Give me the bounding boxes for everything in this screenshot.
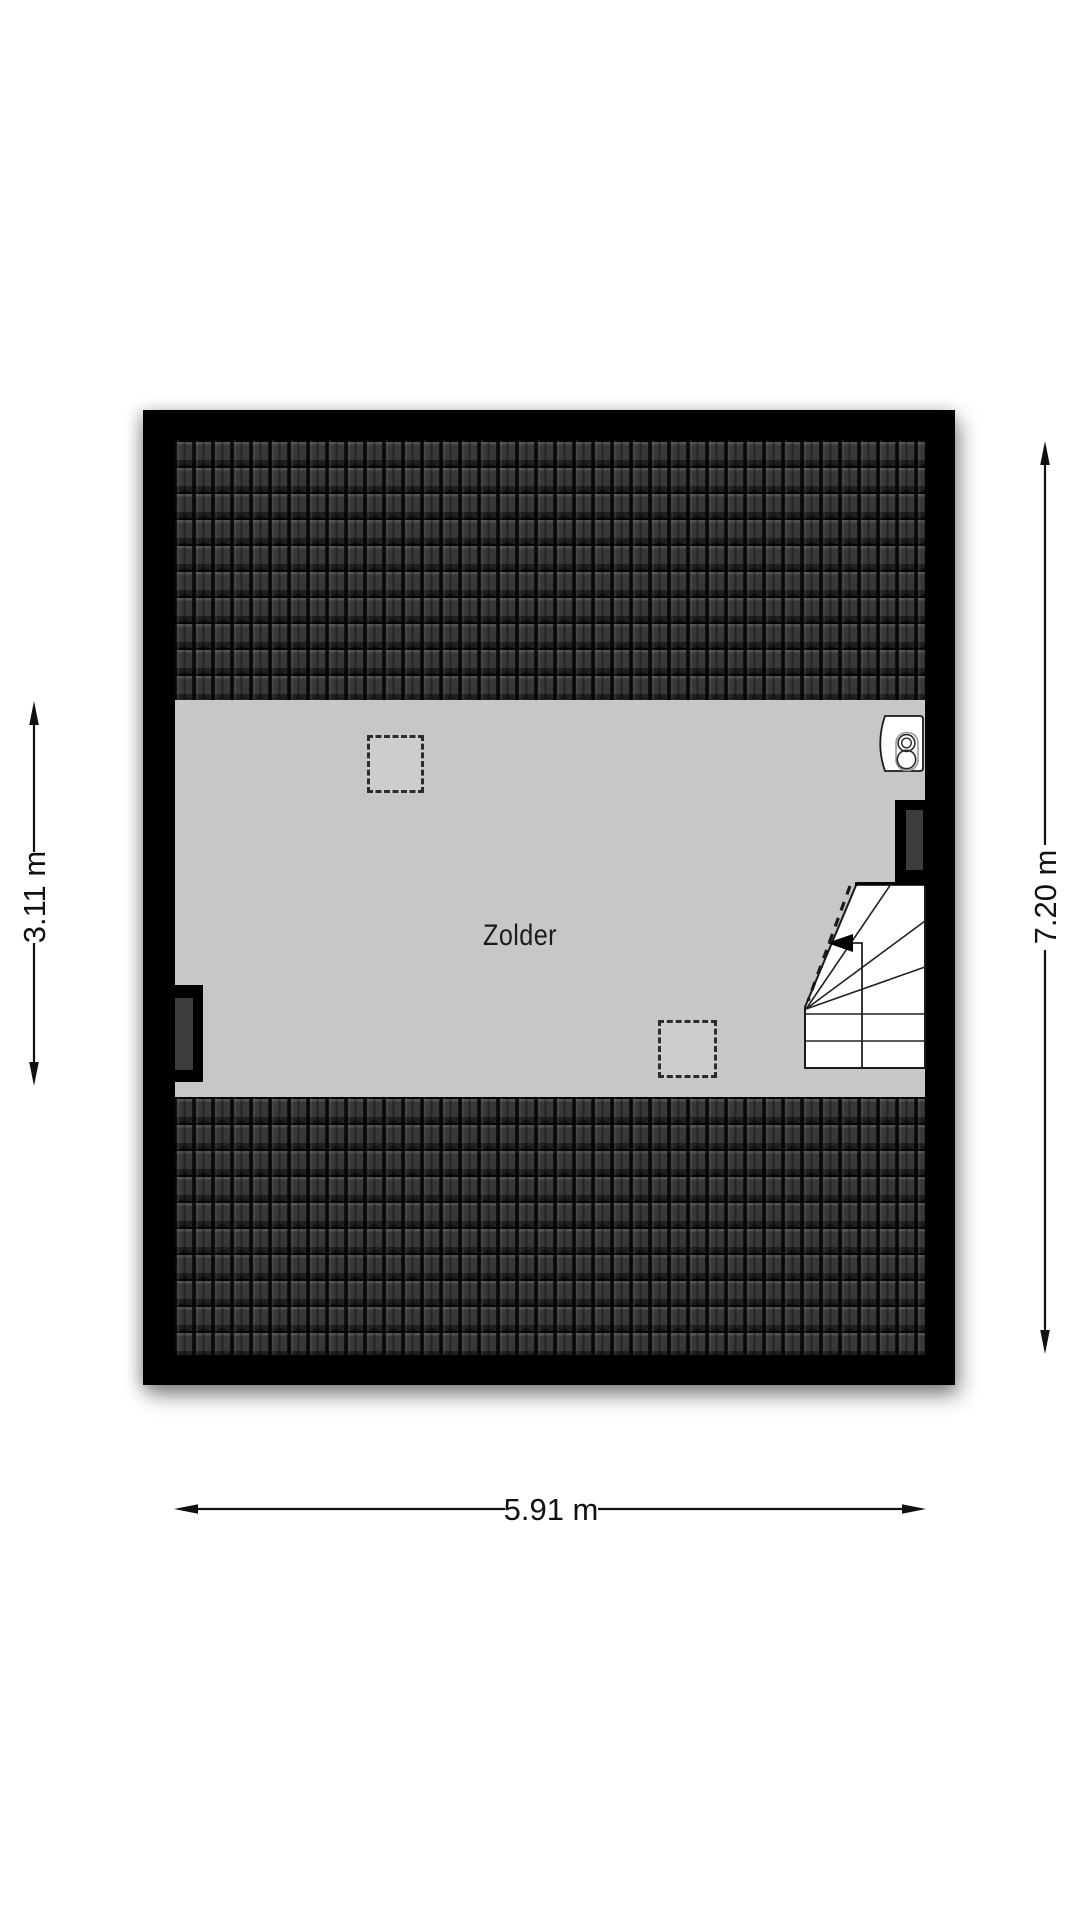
- floorplan-page: { "plan": { "type": "floorplan", "room":…: [0, 0, 1080, 1920]
- dimension-left-label: 3.11 m: [17, 851, 52, 943]
- dimension-bottom-label: 5.91 m: [504, 1492, 599, 1527]
- dimension-overlay: 3.11 m 7.20 m 5.91 m: [0, 0, 1080, 1920]
- dimension-right-label: 7.20 m: [1028, 850, 1063, 945]
- dimension-right: 7.20 m: [1028, 441, 1063, 1354]
- dimension-left: 3.11 m: [17, 701, 52, 1086]
- dimension-bottom: 5.91 m: [174, 1492, 926, 1527]
